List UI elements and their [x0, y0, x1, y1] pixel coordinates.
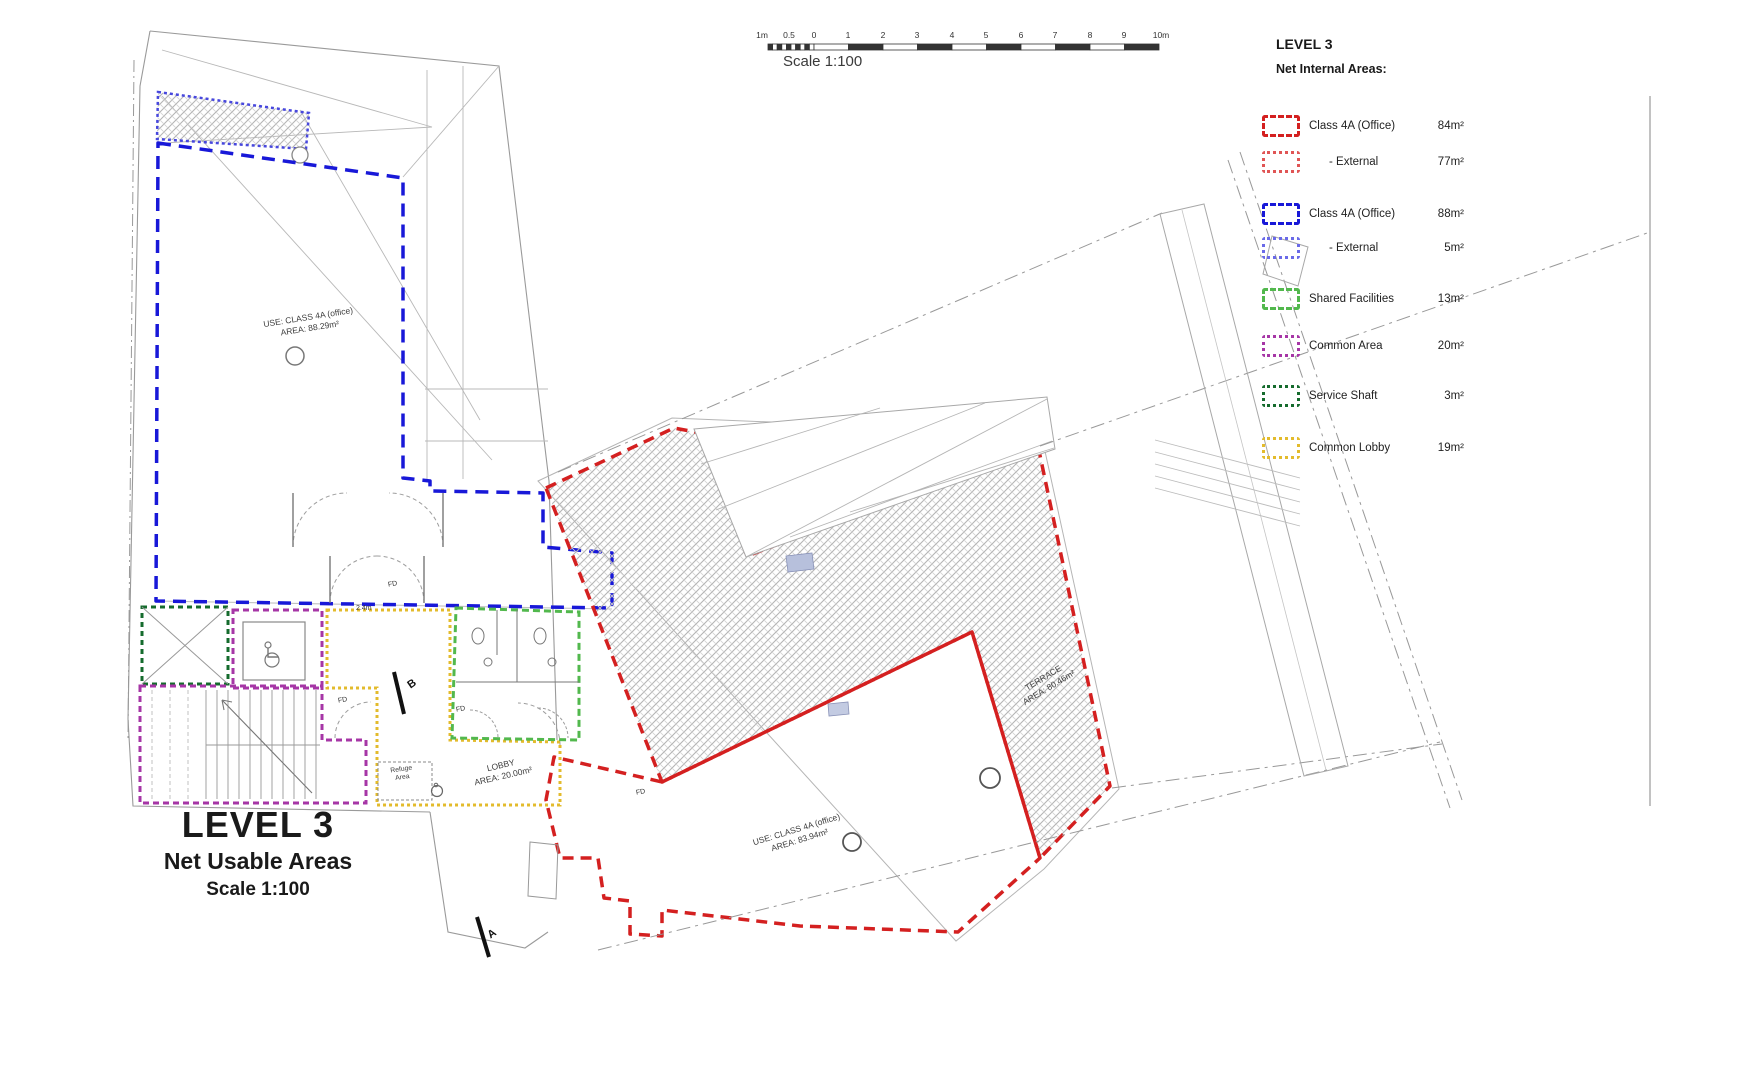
legend-title: LEVEL 3 — [1276, 36, 1333, 52]
legend-item-label: Service Shaft — [1309, 390, 1444, 402]
legend-swatch-green-dashed — [1262, 288, 1300, 310]
legend-swatch-darkgreen-dotted — [1262, 385, 1300, 407]
scale-tick-label: 1m — [756, 30, 768, 40]
stair-area — [140, 686, 366, 803]
shared-facilities — [452, 608, 579, 740]
scale-tick-label: 9 — [1122, 30, 1127, 40]
column-marker — [286, 347, 304, 365]
scale-tick-label: 5 — [984, 30, 989, 40]
legend-item-value: 13m² — [1438, 293, 1464, 305]
plan-drawing — [0, 0, 1755, 1080]
scale-tick-label: 4 — [950, 30, 955, 40]
legend-item-value: 5m² — [1444, 242, 1464, 254]
office-left-boundary — [156, 143, 612, 608]
title-block: LEVEL 3 Net Usable Areas Scale 1:100 — [118, 804, 398, 901]
scale-tick-label: 10m — [1153, 30, 1170, 40]
section-marker-a-line — [477, 917, 489, 957]
legend-swatch-purple-dotted — [1262, 335, 1300, 357]
scale-tick-label: 2 — [881, 30, 886, 40]
legend-item-label: Common Lobby — [1309, 442, 1438, 454]
legend-swatch-red-dotted — [1262, 151, 1300, 173]
legend-swatch-yellow-dotted — [1262, 437, 1300, 459]
legend-swatch-blue-dashed — [1262, 203, 1300, 225]
legend-item-label: Class 4A (Office) — [1309, 120, 1438, 132]
legend-swatch-blue-dotted — [1262, 237, 1300, 259]
legend-item: Class 4A (Office) 84m² — [1262, 114, 1464, 138]
scale-tick-label: 6 — [1019, 30, 1024, 40]
section-marker-b-line — [394, 672, 404, 714]
floor-plan-sheet: 1m 0.5 0 1 2 3 4 5 6 7 8 9 10m Scale 1:1… — [0, 0, 1755, 1080]
legend-item-value: 77m² — [1438, 156, 1464, 168]
legend-item: - External 5m² — [1262, 236, 1464, 260]
legend-item-value: 84m² — [1438, 120, 1464, 132]
legend-item-label: Shared Facilities — [1309, 293, 1438, 305]
legend-item-value: 88m² — [1438, 208, 1464, 220]
legend-item: Common Lobby 19m² — [1262, 436, 1464, 460]
legend-item-value: 20m² — [1438, 340, 1464, 352]
dimension-label: 2.4m — [356, 605, 372, 612]
legend-item-label: - External — [1309, 156, 1438, 168]
legend-item: - External 77m² — [1262, 150, 1464, 174]
legend-item: Class 4A (Office) 88m² — [1262, 202, 1464, 226]
sheet-title: LEVEL 3 — [118, 804, 398, 846]
scale-bar — [768, 44, 1159, 50]
service-shaft — [142, 607, 228, 684]
legend-item-value: 3m² — [1444, 390, 1464, 402]
scale-tick-label: 3 — [915, 30, 920, 40]
legend-swatch-red-dashed — [1262, 115, 1300, 137]
legend-item: Shared Facilities 13m² — [1262, 287, 1464, 311]
legend-item-label: - External — [1309, 242, 1444, 254]
legend-item: Service Shaft 3m² — [1262, 384, 1464, 408]
scale-caption: Scale 1:100 — [783, 53, 862, 70]
door-swings — [293, 493, 560, 745]
site-boundary-left — [128, 60, 134, 740]
scale-tick-label: 7 — [1053, 30, 1058, 40]
legend-item-label: Common Area — [1309, 340, 1438, 352]
scale-tick-label: 8 — [1088, 30, 1093, 40]
legend-item-value: 19m² — [1438, 442, 1464, 454]
legend-subtitle: Net Internal Areas: — [1276, 62, 1387, 76]
lift-area — [233, 610, 322, 688]
legend-item-label: Class 4A (Office) — [1309, 208, 1438, 220]
scale-tick-label: 0.5 — [783, 30, 795, 40]
legend-item: Common Area 20m² — [1262, 334, 1464, 358]
scale-tick-label: 0 — [812, 30, 817, 40]
sheet-subtitle: Net Usable Areas — [118, 848, 398, 875]
scale-tick-label: 1 — [846, 30, 851, 40]
sheet-scale: Scale 1:100 — [118, 879, 398, 901]
